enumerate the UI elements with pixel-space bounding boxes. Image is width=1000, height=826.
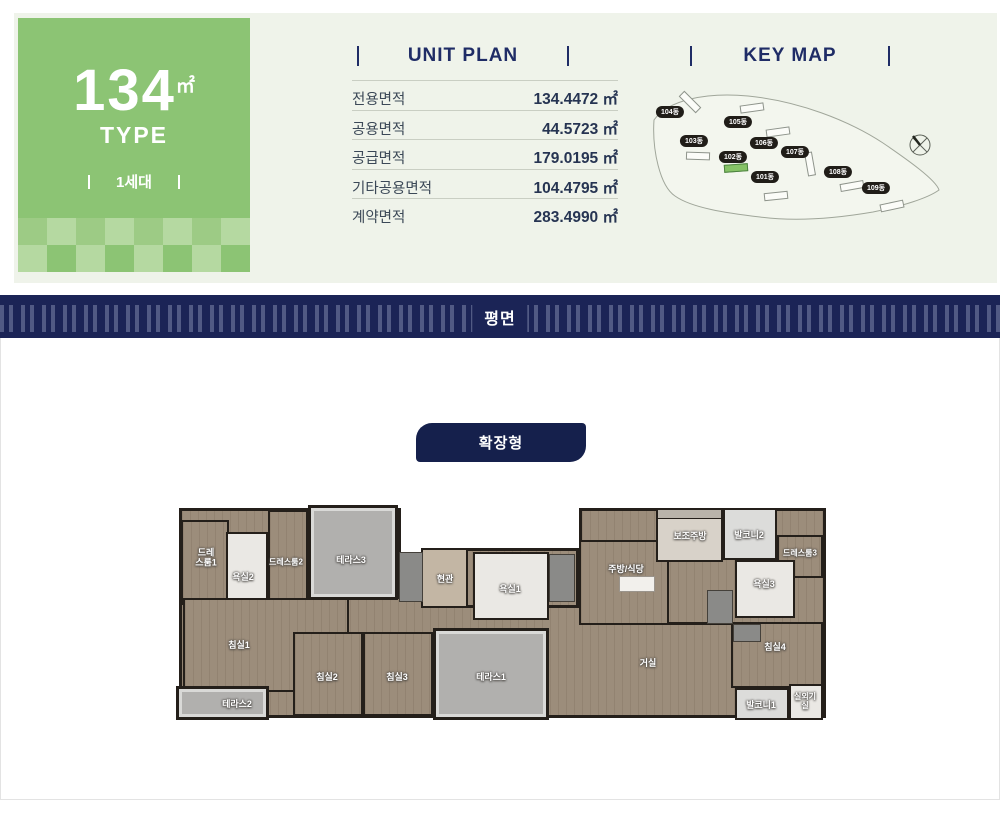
- building-label-105: 105동: [724, 116, 752, 128]
- room-label: 테라스1: [476, 672, 506, 682]
- room-label: 테라스3: [336, 555, 366, 565]
- building-label-104: 104동: [656, 106, 684, 118]
- square-meter-unit: ㎡: [176, 76, 195, 97]
- unit-plan-table: 전용면적 134.4472 ㎡ 공용면적 44.5723 ㎡ 공급면적 179.…: [352, 80, 618, 228]
- room-label: 침실1: [228, 640, 250, 650]
- left-bar-icon: [88, 175, 90, 189]
- spec-label: 기타공용면적: [352, 177, 432, 198]
- building-shape: [686, 152, 710, 161]
- unit-plan-title: UNIT PLAN: [357, 44, 569, 68]
- closet-block: [733, 624, 761, 642]
- kitchen-island: [619, 576, 655, 592]
- spec-label: 공급면적: [352, 147, 405, 168]
- spec-value: 283.4990 ㎡: [534, 205, 618, 227]
- room-label: 드레스룸3: [783, 548, 817, 557]
- building-label-101: 101동: [751, 171, 779, 183]
- room-label: 보조주방: [673, 531, 706, 541]
- header-section: 134㎡ TYPE 1세대 UNIT PLAN 전용면적 134.4472 ㎡ …: [0, 0, 1000, 295]
- title-bar-icon: [357, 46, 359, 66]
- unit-plan-title-text: UNIT PLAN: [408, 45, 518, 67]
- key-map-title-text: KEY MAP: [743, 45, 836, 67]
- spec-label: 계약면적: [352, 206, 405, 227]
- building-label-102: 102동: [719, 151, 747, 163]
- right-bar-icon: [178, 175, 180, 189]
- room-label: 욕실3: [753, 579, 775, 589]
- room-label: 침실3: [386, 672, 408, 682]
- household-row: 1세대: [18, 171, 250, 192]
- building-label-103: 103동: [680, 135, 708, 147]
- building-shape-highlighted: [724, 163, 748, 173]
- room-label: 현관: [437, 574, 454, 584]
- room-label: 실외기실: [793, 692, 817, 710]
- room-terrace3: [308, 505, 398, 600]
- table-row: 전용면적 134.4472 ㎡: [352, 80, 618, 110]
- building-label-108: 108동: [824, 166, 852, 178]
- banner-title: 평면: [472, 302, 527, 332]
- floor-plan-section: 확장형 드레스룸1: [0, 338, 1000, 800]
- title-bar-icon: [690, 46, 692, 66]
- room-label: 욕실2: [232, 572, 254, 582]
- building-label-109: 109동: [862, 182, 890, 194]
- closet-block: [549, 554, 575, 602]
- room-label: 욕실1: [499, 584, 521, 594]
- room-label: 테라스2: [222, 699, 252, 709]
- room-label: 발코니1: [746, 700, 776, 710]
- table-row: 공급면적 179.0195 ㎡: [352, 139, 618, 169]
- spec-value: 134.4472 ㎡: [534, 87, 618, 109]
- type-card: 134㎡ TYPE 1세대: [18, 18, 250, 272]
- building-label-106: 106동: [750, 137, 778, 149]
- table-row: 기타공용면적 104.4795 ㎡: [352, 169, 618, 199]
- room-label: 거실: [640, 658, 657, 668]
- spec-value: 104.4795 ㎡: [534, 176, 618, 198]
- title-bar-icon: [567, 46, 569, 66]
- room-label: 드레스룸1: [194, 548, 218, 569]
- type-size: 134㎡: [18, 18, 250, 120]
- checker-pattern: [18, 218, 250, 272]
- room-label: 주방/식당: [608, 564, 644, 574]
- spec-value: 44.5723 ㎡: [542, 117, 618, 139]
- section-banner: 평면: [0, 295, 1000, 338]
- type-word: TYPE: [18, 122, 250, 149]
- room-label: 드레스룸2: [269, 557, 303, 566]
- household-label: 1세대: [116, 171, 152, 192]
- table-row: 공용면적 44.5723 ㎡: [352, 110, 618, 140]
- compass-icon: [910, 135, 930, 155]
- room-label: 발코니2: [734, 530, 764, 540]
- key-map: 104동 105동 103동 106동 102동 107동 101동 108동 …: [648, 88, 946, 223]
- closet-block: [399, 552, 423, 602]
- closet-block: [707, 590, 733, 624]
- kitchen-counter: [658, 510, 721, 519]
- type-size-number: 134: [73, 58, 176, 123]
- spec-label: 공용면적: [352, 118, 405, 139]
- room-label: 침실2: [316, 672, 338, 682]
- table-row: 계약면적 283.4990 ㎡: [352, 198, 618, 228]
- plan-type-button[interactable]: 확장형: [416, 423, 586, 462]
- room-label: 침실4: [764, 642, 786, 652]
- key-map-title: KEY MAP: [690, 44, 890, 68]
- spec-value: 179.0195 ㎡: [534, 146, 618, 168]
- building-label-107: 107동: [781, 146, 809, 158]
- spec-label: 전용면적: [352, 88, 405, 109]
- floor-plan: 드레스룸1 욕실2 드레스룸2 테라스3 현관 욕실1 주방/식당 보조주방 발…: [171, 498, 836, 730]
- title-bar-icon: [888, 46, 890, 66]
